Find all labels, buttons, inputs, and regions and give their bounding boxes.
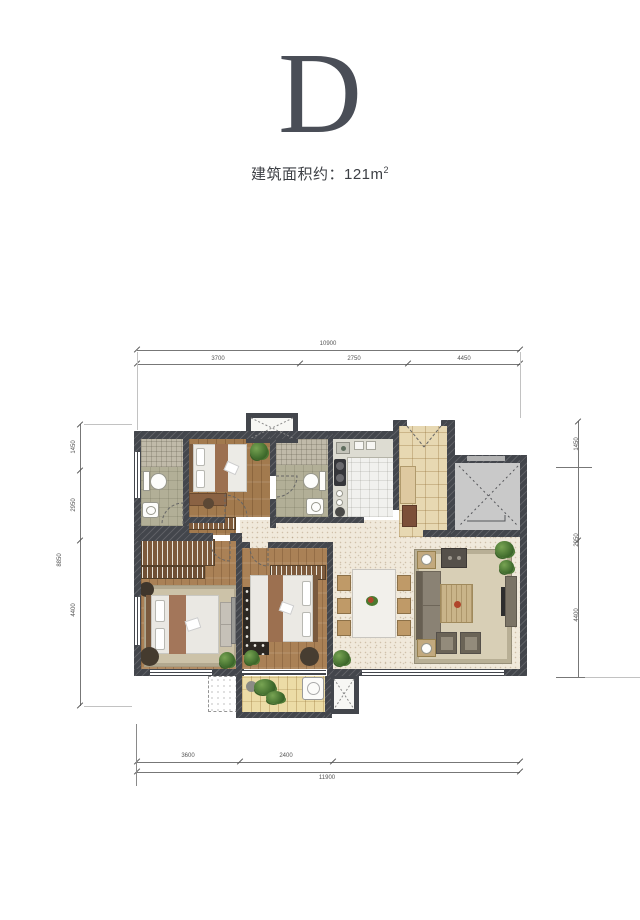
plan-annotations bbox=[0, 0, 640, 920]
ac-platform-x-icon bbox=[334, 679, 354, 709]
door-arc-master-bedroom bbox=[210, 541, 230, 561]
door-arc-bathroom-2 bbox=[276, 476, 297, 497]
door-arc-bedroom-3 bbox=[250, 548, 268, 566]
ac-platform-x-icon bbox=[251, 418, 293, 438]
elevator-x-icon bbox=[459, 466, 518, 526]
door-arc-bathroom-1 bbox=[162, 503, 183, 524]
floorplan-page: D 建筑面积约：121m2 10900 3700 2750 4450 3600 … bbox=[0, 0, 640, 920]
door-arc-bedroom-2 bbox=[225, 495, 247, 517]
elevator-door-mark bbox=[467, 515, 505, 521]
entry-double-door bbox=[407, 426, 441, 447]
